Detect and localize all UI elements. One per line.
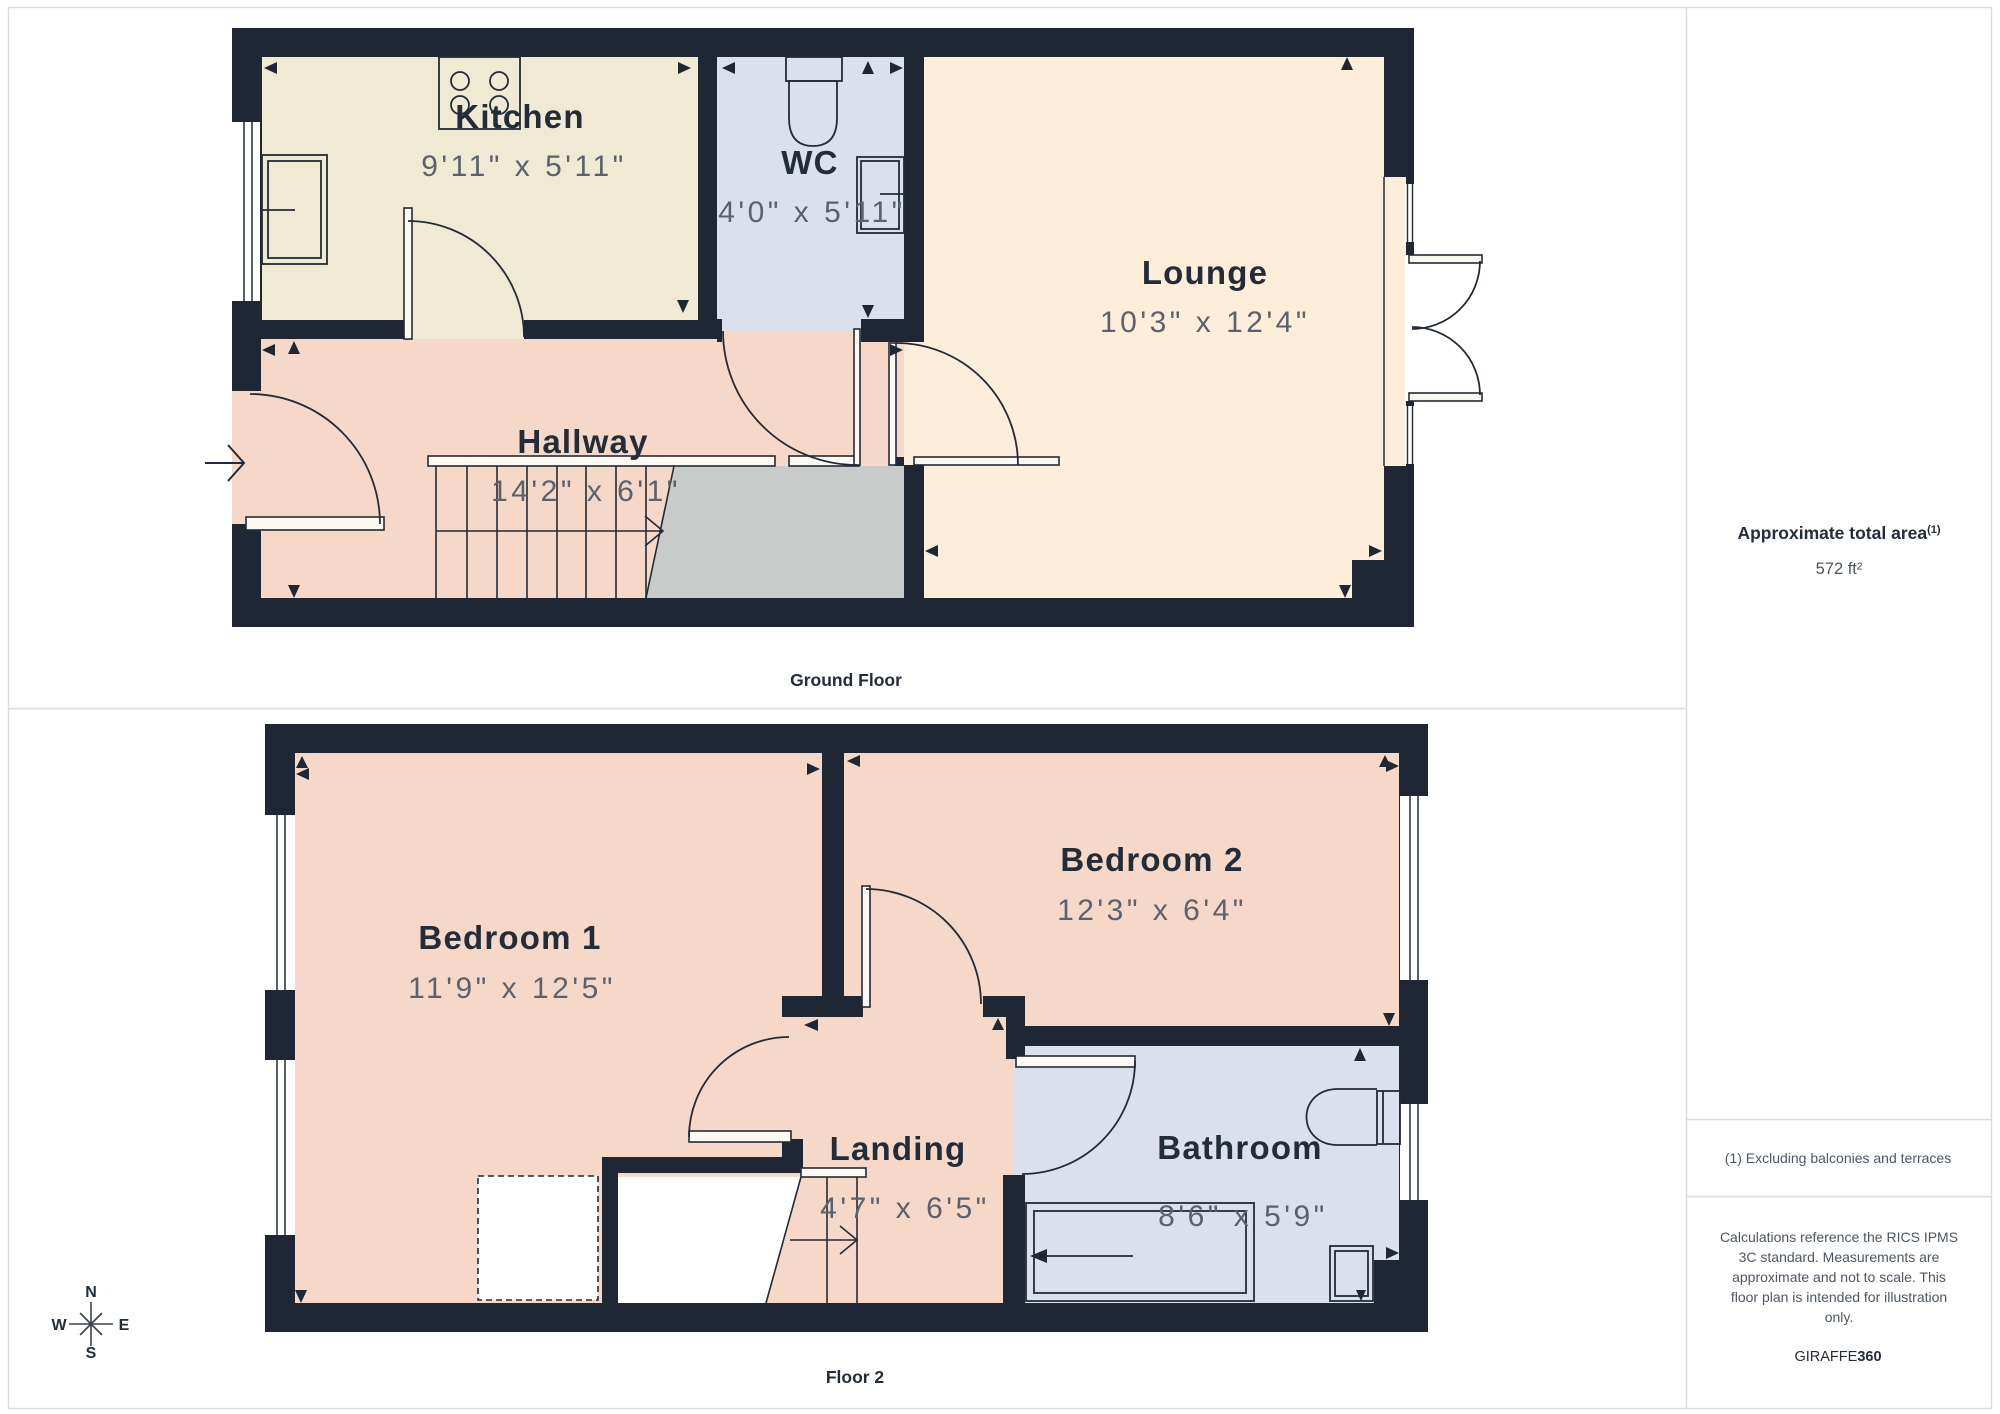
svg-text:4'7" x 6'5": 4'7" x 6'5"	[820, 1192, 990, 1225]
svg-text:8'6" x 5'9": 8'6" x 5'9"	[1158, 1200, 1328, 1233]
svg-text:14'2" x 6'1": 14'2" x 6'1"	[491, 475, 681, 508]
svg-text:Calculations reference the RIC: Calculations reference the RICS IPMS	[1720, 1229, 1958, 1245]
svg-text:3C standard. Measurements are: 3C standard. Measurements are	[1739, 1249, 1940, 1265]
svg-text:11'9" x 12'5": 11'9" x 12'5"	[408, 972, 616, 1005]
svg-text:only.: only.	[1825, 1309, 1854, 1325]
svg-text:W: W	[51, 1317, 67, 1334]
svg-text:(1) Excluding balconies and te: (1) Excluding balconies and terraces	[1725, 1150, 1951, 1166]
svg-text:S: S	[86, 1345, 97, 1362]
svg-text:Approximate total area(1): Approximate total area(1)	[1737, 523, 1940, 543]
svg-text:Kitchen: Kitchen	[455, 98, 584, 135]
svg-text:approximate and not to scale.: approximate and not to scale. This	[1732, 1269, 1946, 1285]
svg-text:E: E	[119, 1317, 130, 1334]
svg-text:Bedroom 2: Bedroom 2	[1060, 841, 1243, 878]
svg-text:floor plan is intended for ill: floor plan is intended for illustration	[1731, 1289, 1947, 1305]
svg-text:572 ft²: 572 ft²	[1816, 560, 1863, 578]
svg-text:GIRAFFE360: GIRAFFE360	[1794, 1349, 1881, 1365]
svg-text:Bathroom: Bathroom	[1157, 1129, 1322, 1166]
svg-text:N: N	[85, 1284, 97, 1301]
svg-text:9'11" x 5'11": 9'11" x 5'11"	[421, 150, 627, 183]
svg-text:Hallway: Hallway	[517, 423, 648, 460]
svg-text:12'3" x 6'4": 12'3" x 6'4"	[1057, 894, 1247, 927]
svg-text:Lounge: Lounge	[1142, 254, 1268, 291]
svg-text:10'3" x 12'4": 10'3" x 12'4"	[1100, 306, 1310, 339]
svg-text:Floor 2: Floor 2	[826, 1367, 885, 1387]
svg-text:WC: WC	[781, 144, 838, 181]
svg-text:Ground Floor: Ground Floor	[790, 670, 902, 690]
svg-text:Bedroom 1: Bedroom 1	[418, 919, 601, 956]
svg-text:Landing: Landing	[830, 1130, 967, 1167]
svg-text:4'0" x 5'11": 4'0" x 5'11"	[718, 196, 906, 229]
